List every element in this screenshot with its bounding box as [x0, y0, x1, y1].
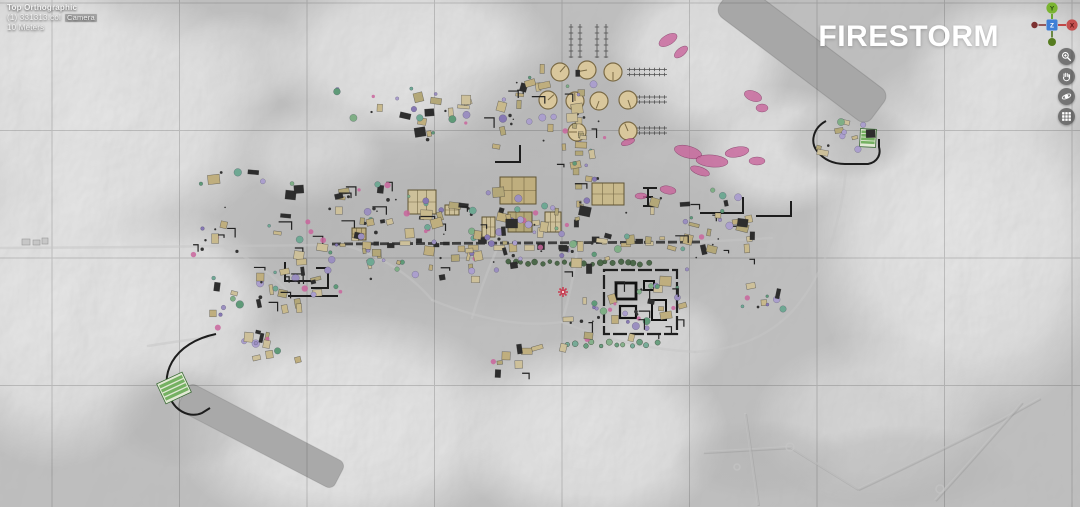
view-mode-label: Top Orthographic	[7, 3, 98, 13]
axis-z-label: Z	[1050, 23, 1054, 30]
scale-label: 10 Meters	[7, 23, 98, 33]
zoom-in-icon	[1061, 51, 1072, 62]
axis-neg-y-handle[interactable]	[1048, 38, 1056, 46]
pan-hand-icon	[1061, 71, 1072, 82]
axis-gizmo[interactable]: Y Z X	[1026, 1, 1080, 49]
camera-chip[interactable]: Camera	[64, 13, 98, 24]
orbit-button[interactable]	[1058, 88, 1075, 105]
grid-button[interactable]	[1058, 108, 1075, 125]
map-title: FIRESTORM	[818, 20, 999, 54]
axis-x-label: X	[1070, 22, 1075, 29]
grid-icon	[1061, 111, 1072, 122]
3d-viewport[interactable]: Top Orthographic (1) 331313.col Camera 1…	[0, 0, 1080, 507]
axis-y-label: Y	[1050, 5, 1055, 12]
terrain-map[interactable]	[0, 0, 1080, 507]
viewport-toolbar	[1058, 48, 1075, 125]
selection-label: (1) 331313.col	[7, 13, 61, 23]
zoom-button[interactable]	[1058, 48, 1075, 65]
viewport-info: Top Orthographic (1) 331313.col Camera 1…	[7, 3, 98, 33]
axis-neg-x-handle[interactable]	[1031, 22, 1037, 28]
orbit-icon	[1061, 91, 1072, 102]
terrain-hillshade	[0, 0, 1080, 507]
pan-button[interactable]	[1058, 68, 1075, 85]
